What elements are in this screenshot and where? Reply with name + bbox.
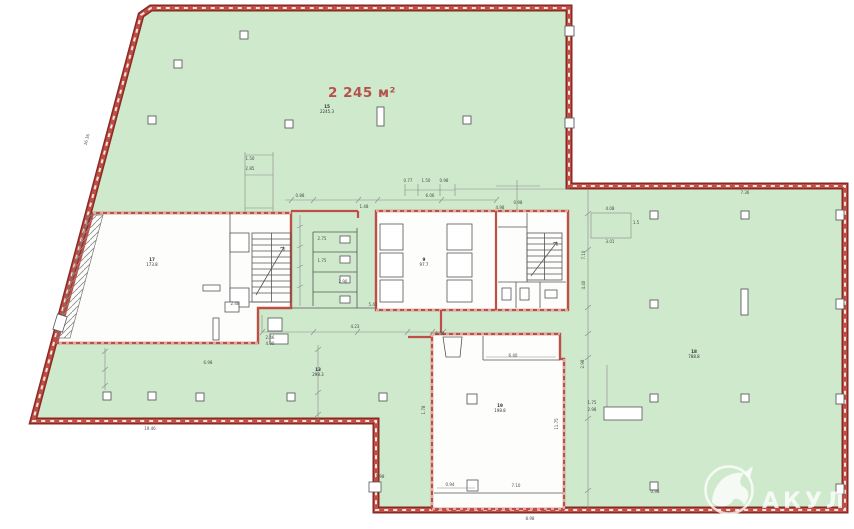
dimension-label: 0.98: [440, 178, 449, 183]
dimension-label: 8.98: [526, 516, 535, 521]
wc-fixture: [502, 288, 511, 300]
dimension-label: 1.48: [360, 204, 369, 209]
dimension-label: 2.75: [318, 236, 327, 241]
dimension-label: 2.48: [231, 301, 240, 306]
dimension-label: 4.98: [496, 205, 505, 210]
dimension-label: 0.77: [404, 178, 413, 183]
dimension-label: 2.90: [339, 279, 348, 284]
duct: [467, 480, 478, 491]
dimension-label: 3.01: [606, 239, 615, 244]
dimension-label: 2.46: [266, 335, 275, 340]
room-area-label: 198.8: [494, 408, 506, 413]
dimension-label: 19.46: [144, 426, 156, 431]
elevator-shaft: [447, 280, 472, 302]
dimension-label: 0.98: [514, 200, 523, 205]
left-room-block: [53, 213, 291, 343]
dimension-label: 2.98: [580, 359, 585, 368]
floor-plan-page: 2 245 м² 152245.317173.8997.713298.31919…: [0, 0, 854, 529]
dimension-label: 1.50: [246, 156, 255, 161]
dim-box: [604, 407, 642, 420]
elevator-shaft: [380, 224, 403, 250]
duct: [213, 318, 219, 340]
dimension-label: 5.41: [369, 302, 378, 307]
dimension-label: 16.36: [83, 133, 91, 146]
wc-fixture: [545, 290, 557, 298]
room-area-label: 788.8: [688, 354, 700, 359]
dimension-label: 1.50: [422, 178, 431, 183]
dimension-label: 4.40: [581, 280, 586, 289]
dimension-label: 0.94: [446, 482, 455, 487]
dimension-label: 4.08: [606, 206, 615, 211]
floor-plan-drawing: 2 245 м² 152245.317173.8997.713298.31919…: [0, 0, 854, 529]
elevator-shaft: [447, 224, 472, 250]
dimension-label: 1.75: [318, 258, 327, 263]
dimension-label: 4.90: [266, 341, 275, 346]
elevator-shaft: [447, 253, 472, 277]
dimension-label: 7.10: [512, 483, 521, 488]
room-area-label: 173.8: [146, 262, 158, 267]
dimension-label: 1.98: [376, 474, 385, 479]
dimension-label: 1.88: [436, 331, 445, 336]
wc-fixture: [520, 288, 529, 300]
elevator-shaft: [380, 280, 403, 302]
wc-fixture: [340, 296, 350, 303]
dimension-label: 7.36: [741, 190, 750, 195]
column: [268, 318, 282, 331]
dimension-label: 7.10: [581, 250, 586, 259]
room-area-label: 2245.3: [320, 109, 334, 114]
dimension-label: 1.5: [633, 220, 640, 225]
dimension-label: 4.23: [351, 324, 360, 329]
column: [467, 394, 477, 404]
dimension-label: 6.40: [509, 353, 518, 358]
wc-fixture: [340, 256, 350, 263]
watermark-text: АКУЛА: [762, 489, 854, 514]
dimension-label: 2.98: [588, 407, 597, 412]
duct: [203, 285, 220, 291]
dimension-label: 11.75: [554, 418, 559, 430]
wc-fixture: [340, 236, 350, 243]
wall-niche: [369, 482, 381, 492]
dimension-label: 0.98: [651, 489, 660, 494]
right-core-block: [376, 211, 568, 310]
dimension-label: 6.06: [426, 193, 435, 198]
total-area-label: 2 245 м²: [328, 85, 396, 101]
dimension-label: 1.78: [421, 405, 426, 414]
room-area-label: 97.7: [420, 262, 429, 267]
dimension-label: 0.88: [296, 193, 305, 198]
elevator-shaft: [230, 233, 249, 252]
dimension-label: 1.75: [588, 400, 597, 405]
room-area-label: 298.3: [312, 372, 324, 377]
elevator-shaft: [380, 253, 403, 277]
dimension-label: 2.85: [246, 166, 255, 171]
dimension-label: 6.98: [204, 360, 213, 365]
